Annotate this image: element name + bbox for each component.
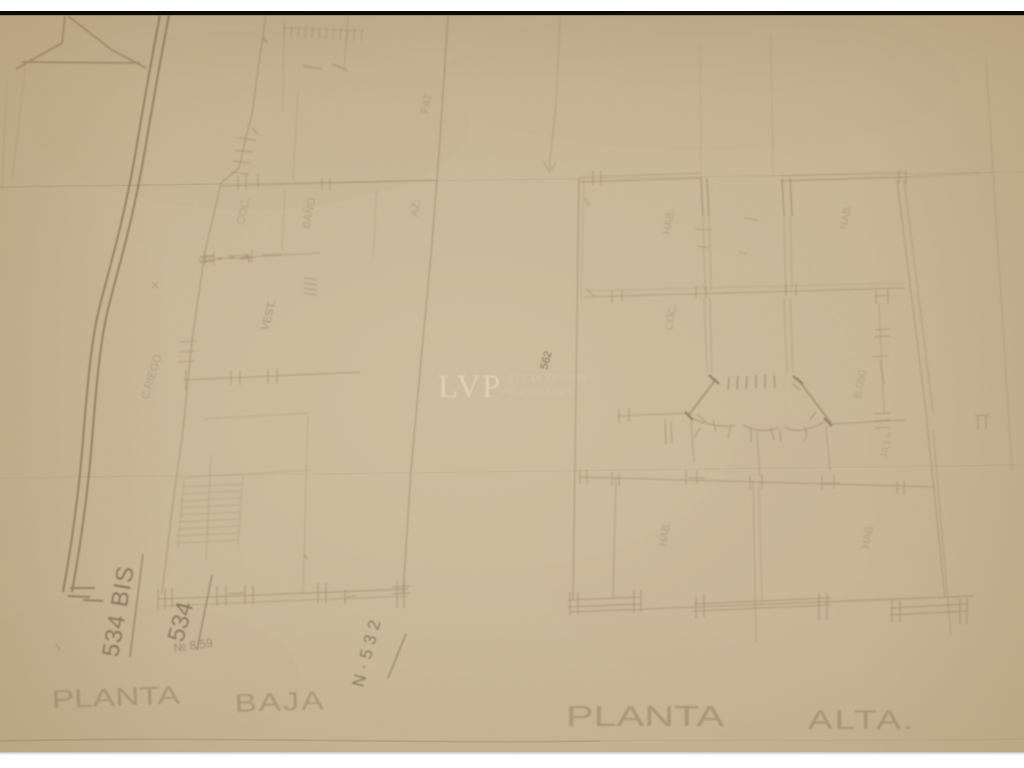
svg-text:ALTA.: ALTA. xyxy=(808,705,915,735)
svg-text:PLANTA: PLANTA xyxy=(51,681,180,714)
svg-text:LETICIA VICENTE: LETICIA VICENTE xyxy=(502,374,589,384)
svg-text:BAJA: BAJA xyxy=(234,686,326,718)
svg-text:PROPIEDADES: PROPIEDADES xyxy=(502,388,572,398)
svg-text:PLANTA: PLANTA xyxy=(566,700,724,732)
svg-text:LVP: LVP xyxy=(438,369,502,405)
